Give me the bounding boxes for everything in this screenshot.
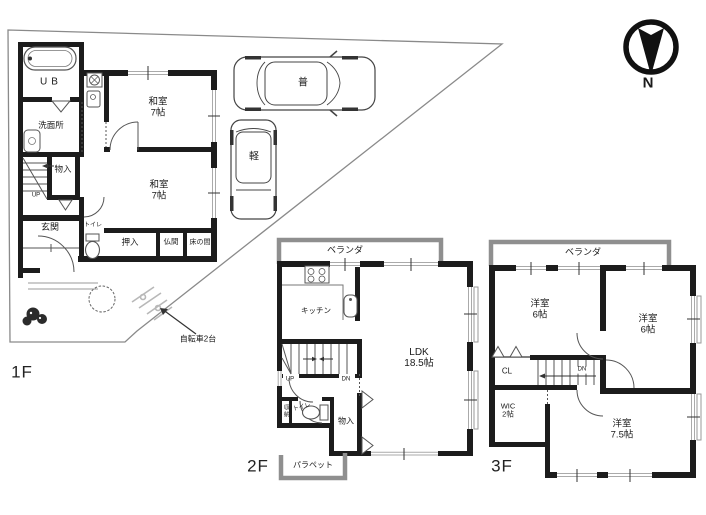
garden-tree bbox=[89, 286, 115, 312]
floor3-windows bbox=[516, 262, 701, 482]
floor2-tag: 2F bbox=[247, 456, 269, 475]
label-cl: CL bbox=[502, 368, 512, 377]
label-up-1f: UP bbox=[32, 193, 40, 200]
label-western-room-1: 洋室 6帖 bbox=[530, 299, 549, 320]
label-bicycle-note: 自転車2台 bbox=[180, 336, 216, 345]
bicycles-sketch bbox=[132, 287, 172, 320]
label-storage-1f: 物入 bbox=[54, 165, 71, 175]
bicycle-arrow bbox=[160, 308, 196, 334]
label-tatami-south: 和室 7帖 bbox=[149, 180, 168, 201]
label-western-room-2: 洋室 6帖 bbox=[638, 314, 657, 335]
label-dn-3f: DN bbox=[577, 367, 588, 374]
floor-plan-canvas: UB 洗面所 物入 和室 7帖 和室 7帖 玄関 トイレ 押入 仏間 床の間 U… bbox=[0, 0, 706, 515]
label-tatami-north: 和室 7帖 bbox=[148, 97, 167, 118]
label-storage-small-2f: 収納 bbox=[282, 404, 289, 418]
label-wic: WIC 2帖 bbox=[501, 403, 516, 420]
car-kei bbox=[230, 120, 277, 219]
label-ldk: LDK 18.5帖 bbox=[404, 347, 433, 369]
label-car-regular: 普 bbox=[298, 77, 308, 88]
floor3-tag: 3F bbox=[491, 456, 513, 475]
label-alcove: 床の間 bbox=[190, 239, 211, 247]
label-dn-2f: DN bbox=[342, 377, 351, 384]
label-western-room-3: 洋室 7.5帖 bbox=[611, 419, 634, 440]
label-storage-2f: 物入 bbox=[338, 418, 354, 427]
floor-plan-linework bbox=[0, 0, 706, 515]
label-closet-oshiire: 押入 bbox=[121, 238, 138, 248]
label-parapet: パラペット bbox=[293, 462, 333, 471]
label-washroom: 洗面所 bbox=[38, 121, 64, 131]
label-entrance: 玄関 bbox=[41, 222, 59, 232]
garden-shrub bbox=[23, 308, 48, 326]
compass-icon bbox=[626, 22, 676, 72]
label-veranda-2f: ベランダ bbox=[327, 245, 363, 255]
label-toilet-1f: トイレ bbox=[84, 223, 102, 230]
floor1-tag: 1F bbox=[11, 362, 33, 381]
label-compass-north: N bbox=[643, 76, 654, 93]
label-unit-bath: UB bbox=[40, 76, 62, 87]
label-altar-room: 仏間 bbox=[164, 238, 179, 246]
label-up-2f: UP bbox=[286, 377, 294, 384]
floor1-windows bbox=[128, 66, 220, 218]
label-veranda-3f: ベランダ bbox=[565, 247, 601, 257]
floor3-walls bbox=[489, 265, 696, 478]
label-car-kei: 軽 bbox=[249, 151, 259, 162]
label-kitchen: キッチン bbox=[301, 307, 331, 315]
